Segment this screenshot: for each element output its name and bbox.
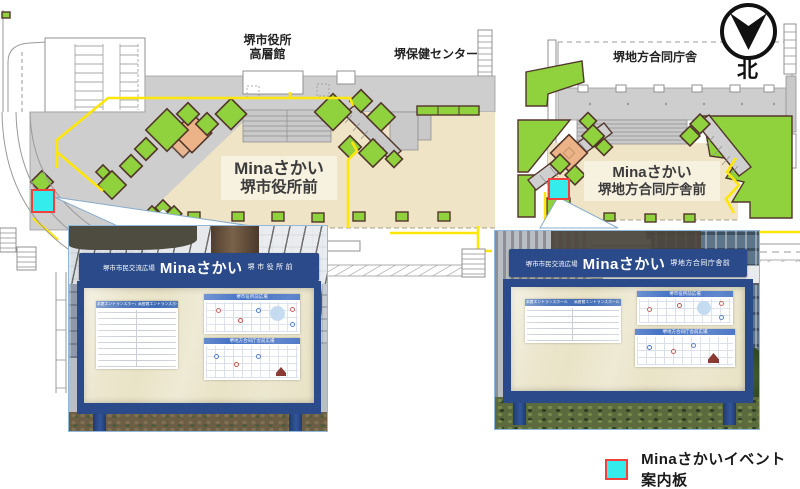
north-arrow-icon [724, 7, 773, 56]
photo-board-gov: 堺市市民交流広場 Minaさかい 堺地方合同庁舎前 本館エントランスホール 高層… [494, 230, 760, 430]
event-stamp [216, 308, 221, 313]
event-stamp [256, 354, 261, 359]
board-title-gov: 堺市市民交流広場 Minaさかい 堺地方合同庁舎前 [509, 249, 747, 277]
label-cityhall-tower: 堺市役所 高層館 [210, 33, 325, 62]
schedule-sheet: 本館エントランスホール 高層館エントランスホール [96, 301, 178, 369]
board-marker-gov [549, 179, 569, 199]
tower-footprint [243, 71, 303, 94]
schedule-col-tower: 高層館エントランスホール [138, 302, 177, 307]
event-stamp [719, 301, 724, 306]
label-gov-building: 堺地方合同庁舎 [599, 50, 711, 64]
board-marker-cityhall [32, 190, 54, 212]
label-plaza-gov: Minaさかい 堺地方合同庁舎前 [584, 161, 720, 201]
event-stamp [238, 318, 243, 323]
calendar-sheet-gov: 堺地方合同庁舎前広場 [635, 329, 735, 367]
schedule-col-main: 本館エントランスホール [97, 302, 136, 307]
legend: Minaさかいイベント案内板 [605, 448, 800, 489]
event-logo [270, 306, 285, 321]
tree-canopy-dark [69, 226, 197, 250]
stairs-southwest [0, 228, 36, 270]
calendar-title: 堺地方合同庁舎前広場 [635, 329, 735, 335]
calendar-grid [639, 299, 731, 323]
schedule-sheet: 本館エントランスホール 高層館エントランスホール [525, 299, 621, 343]
calendar-grid [206, 302, 298, 332]
board-brand-name: Minaさかい [583, 253, 666, 274]
event-stamp [214, 354, 219, 359]
calendar-title: 堺地方合同庁舎前広場 [204, 338, 300, 344]
board-place-name: 堺地方合同庁舎前 [670, 258, 730, 268]
label-plaza-cityhall: Minaさかい 堺市役所前 [221, 156, 337, 200]
compass [720, 3, 777, 60]
board-title-cityhall: 堺市市民交流広場 Minaさかい 堺市役所前 [79, 253, 319, 281]
board-brand-name: Minaさかい [160, 257, 243, 278]
guide-map-page: 堺市役所 高層館 堺保健センター Minaさかい 堺市役所前 堺地方合同庁舎 M… [0, 0, 800, 489]
schedule-rows [527, 308, 619, 341]
calendar-sheet-cityhall: 堺市役所前広場 [637, 291, 733, 325]
schedule-col-tower: 高層館エントランスホール [574, 300, 620, 305]
board-site-name: 堺市市民交流広場 [103, 262, 155, 272]
label-health-center: 堺保健センター [376, 47, 496, 61]
photo-board-cityhall: 堺市市民交流広場 Minaさかい 堺市役所前 本館エントランスホール 高層館エン… [68, 225, 328, 432]
calendar-title: 堺市役所前広場 [637, 291, 733, 297]
footprint-notch [337, 71, 355, 84]
schedule-col-main: 本館エントランスホール [526, 300, 572, 305]
calendar-sheet-cityhall: 堺市役所前広場 [204, 294, 300, 334]
board-case-cityhall: 本館エントランスホール 高層館エントランスホール 堺市役所前広場 堺地方合同庁舎… [77, 281, 321, 414]
event-stamp [647, 345, 652, 350]
event-stamp [647, 307, 652, 312]
schedule-rows [98, 310, 176, 367]
event-stamp [691, 343, 696, 348]
board-place-name: 堺市役所前 [248, 262, 296, 272]
event-stamp [671, 349, 676, 354]
calendar-title: 堺市役所前広場 [204, 294, 300, 300]
calendar-sheet-gov: 堺地方合同庁舎前広場 [204, 338, 300, 380]
board-site-name: 堺市市民交流広場 [526, 258, 578, 268]
legend-marker-swatch [605, 459, 628, 480]
event-stamp [290, 322, 295, 327]
event-stamp [290, 307, 295, 312]
stairs-southeast [462, 249, 485, 277]
board-case-gov: 本館エントランスホール 高層館エントランスホール 堺市役所前広場 堺地方合同庁舎… [503, 279, 753, 403]
road-south-edge [56, 272, 66, 393]
event-logo [697, 301, 711, 315]
north-label: 北 [737, 58, 758, 83]
event-stamp [677, 303, 682, 308]
event-stamp [719, 315, 724, 320]
planter-strip-north [417, 106, 479, 115]
legend-label: Minaさかいイベント案内板 [641, 448, 800, 489]
event-stamp [256, 308, 261, 313]
event-stamp [234, 362, 239, 367]
road-east [760, 244, 800, 262]
